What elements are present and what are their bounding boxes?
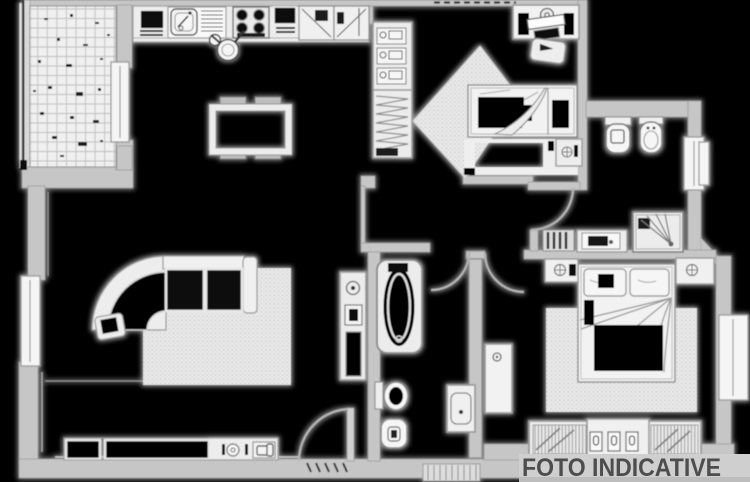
svg-text:FOTO INDICATIVE: FOTO INDICATIVE [522, 454, 721, 482]
